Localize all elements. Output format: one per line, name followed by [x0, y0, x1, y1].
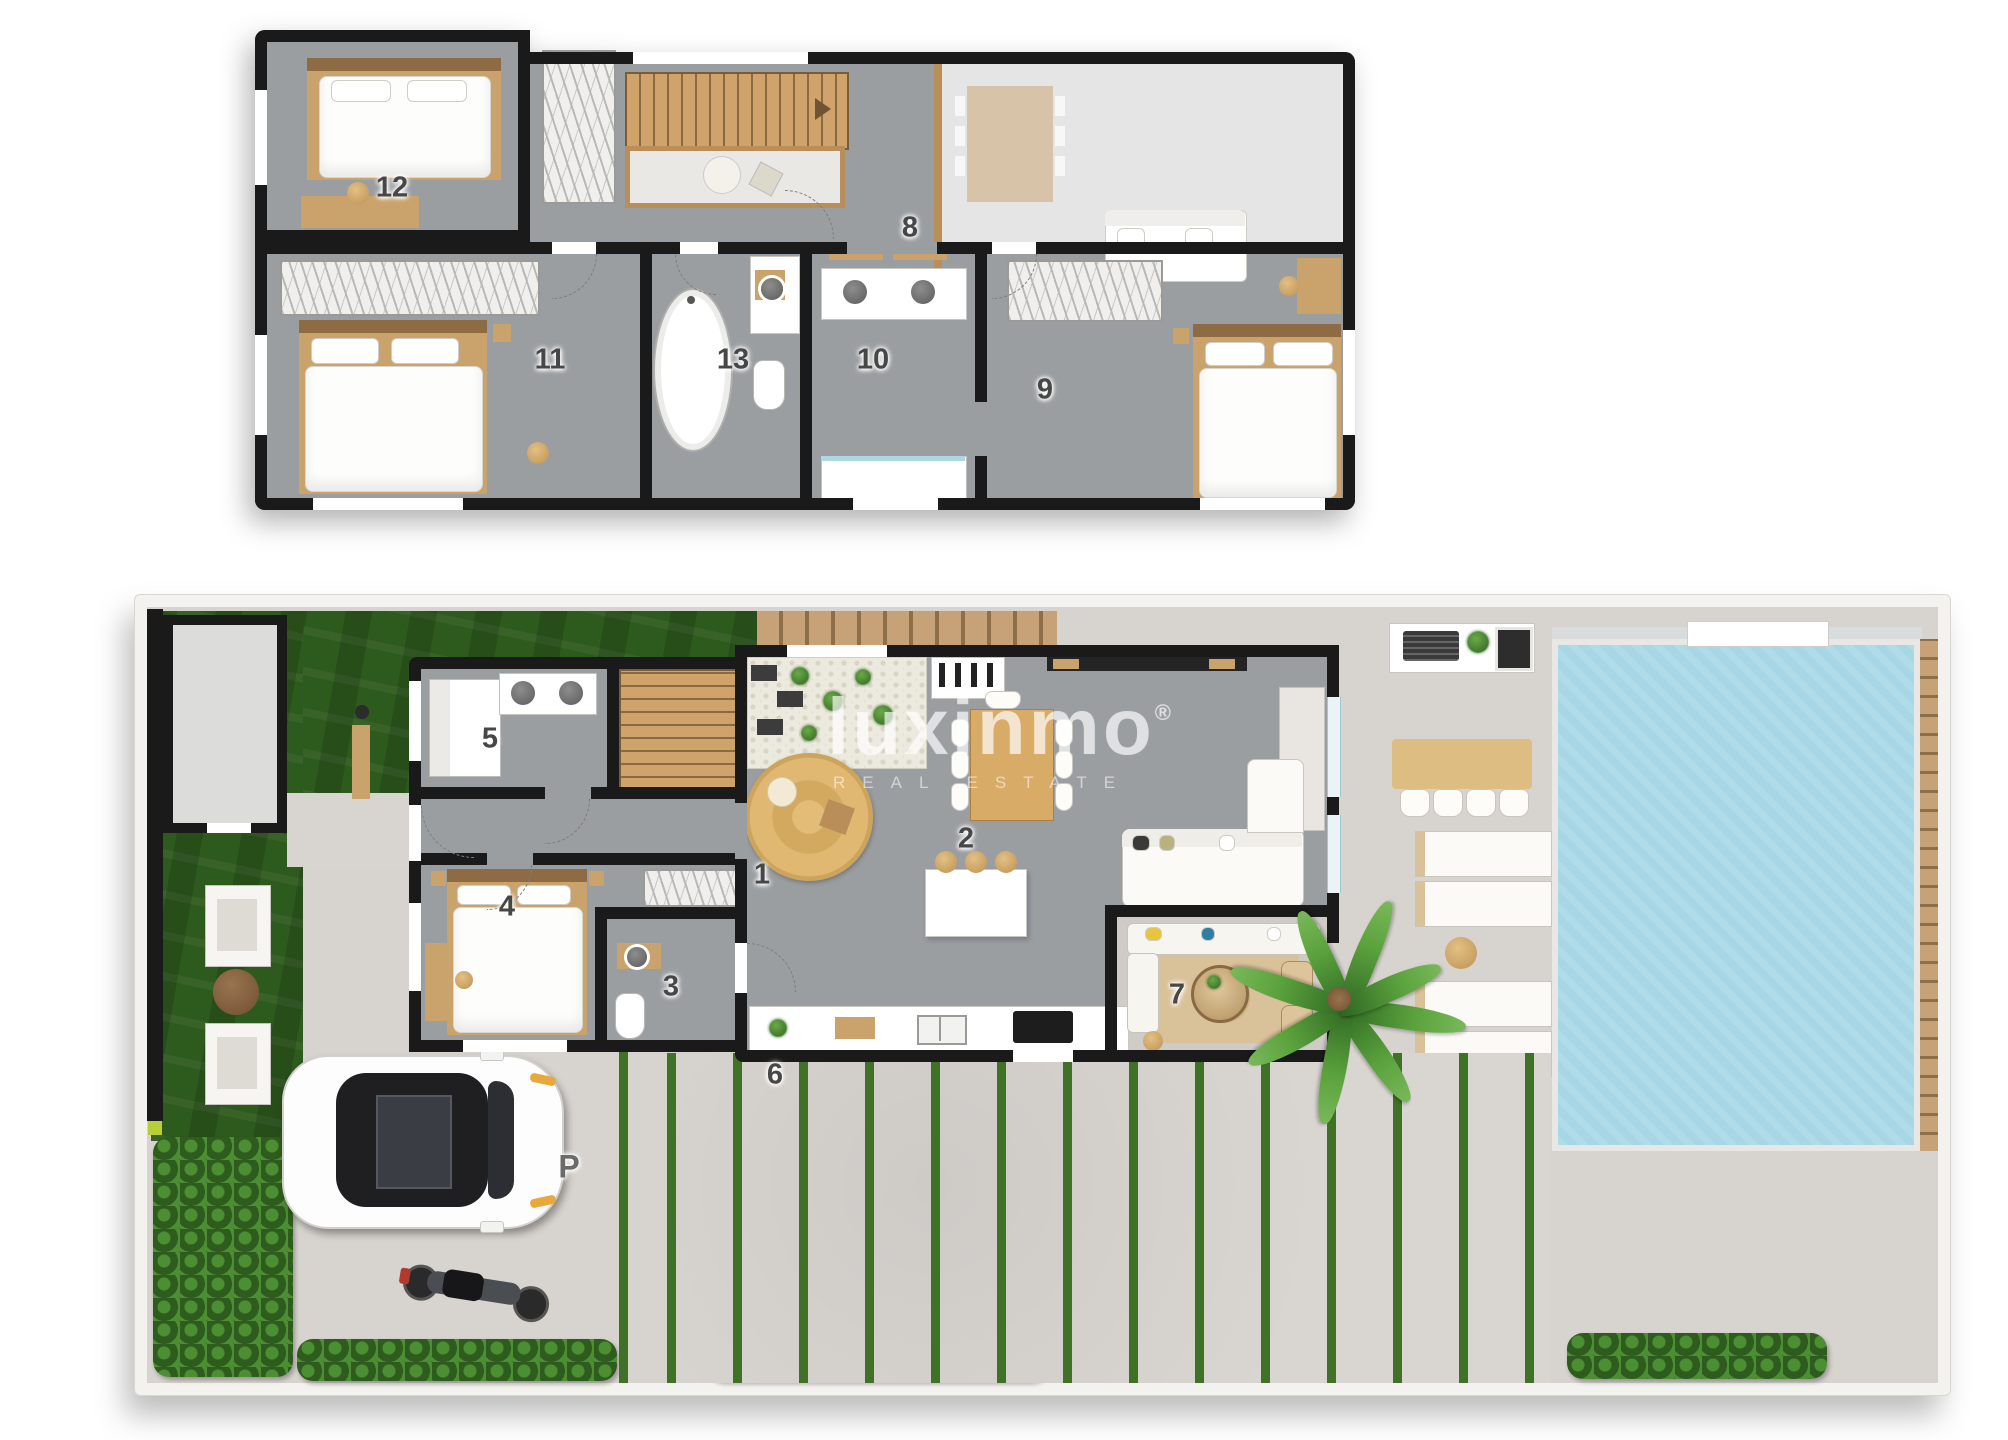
- door-gap-bedroom-11: [552, 242, 596, 254]
- partition-11-13: [640, 254, 652, 498]
- tub-faucet: [687, 296, 695, 304]
- outdoor-dining-table: [1392, 739, 1532, 789]
- toilet-3: [615, 993, 645, 1039]
- room4-door-gap: [487, 853, 533, 865]
- palm-trunk: [1327, 987, 1351, 1011]
- bed-11-pillow: [311, 338, 379, 364]
- terrace-pouf: [1143, 1031, 1163, 1051]
- bed-9-headboard: [1193, 324, 1341, 337]
- media-console: [1053, 659, 1079, 669]
- dining-chair: [985, 691, 1021, 709]
- stepping-slab: [777, 691, 803, 707]
- ghost-chair: [1055, 96, 1065, 116]
- ground-staircase: [619, 669, 739, 791]
- dining-chair: [1055, 751, 1073, 779]
- bed-9-pillow: [1205, 342, 1265, 366]
- window: [255, 90, 267, 185]
- ghost-sofa-back: [1105, 210, 1245, 226]
- outdoor-dining-chair: [1466, 789, 1496, 817]
- room-label-6: 6: [767, 1059, 783, 1092]
- hedge-bottom: [1567, 1333, 1827, 1379]
- window: [787, 645, 887, 657]
- motorcycle: [395, 1244, 553, 1331]
- partition-13-10: [800, 254, 812, 498]
- bedroom-11-wardrobe: [280, 260, 540, 316]
- window: [255, 335, 267, 435]
- wall-room3: [595, 907, 607, 1040]
- room-label-10: 10: [857, 344, 889, 377]
- pool-deck-wood: [1920, 639, 1938, 1151]
- car-mirror: [480, 1221, 504, 1233]
- dressing-desk-4: [425, 943, 449, 1021]
- car-sunroof: [376, 1095, 452, 1189]
- lounger-side-table: [1445, 937, 1477, 969]
- sofa-pillow-dark: [1132, 835, 1150, 851]
- window: [409, 903, 421, 991]
- outdoor-dining-chair: [1433, 789, 1463, 817]
- dining-chair: [1055, 783, 1073, 811]
- wall: [1105, 917, 1117, 1062]
- room-label-13: 13: [717, 344, 749, 377]
- garden-plant: [873, 705, 893, 725]
- kitchen-sink-divider: [939, 1015, 941, 1041]
- kitchen-plant: [769, 1019, 787, 1037]
- parking-label: P: [558, 1149, 579, 1186]
- bed-9-duvet: [1199, 368, 1337, 498]
- room3-door-gap: [735, 943, 747, 993]
- window: [409, 681, 421, 761]
- serving-tray: [1495, 627, 1533, 671]
- glass-door: [1327, 815, 1341, 893]
- outdoor-dining-chair: [1400, 789, 1430, 817]
- table-plant: [1207, 975, 1221, 989]
- washbasin-10: [911, 280, 935, 304]
- stepping-slab: [751, 665, 777, 681]
- shower-10: [821, 456, 967, 500]
- hall-wardrobe: [542, 50, 616, 204]
- car: [282, 1055, 564, 1229]
- garden-plant: [801, 725, 817, 741]
- bed-11-pillow: [391, 338, 459, 364]
- wall: [255, 230, 530, 242]
- window: [463, 1040, 567, 1052]
- washbasin-5: [559, 681, 583, 705]
- garden-side-table: [213, 969, 259, 1015]
- ghost-chair: [955, 126, 965, 146]
- gate-marker: [148, 1121, 162, 1135]
- washbasin-3: [627, 947, 647, 967]
- grass-joint-line: [619, 1037, 628, 1383]
- outdoor-sofa-return: [1127, 953, 1159, 1033]
- wall: [255, 242, 1355, 254]
- garden-armchair-cushion: [217, 1037, 257, 1089]
- car-windshield: [488, 1081, 514, 1199]
- storage-door-gap: [207, 823, 251, 833]
- media-console: [1209, 659, 1235, 669]
- motorcycle-seat: [441, 1268, 485, 1302]
- bed-12-headboard: [307, 58, 501, 71]
- bbq-grill: [1403, 631, 1459, 661]
- dressing-stool-4: [455, 971, 473, 989]
- car-headlight: [529, 1072, 556, 1086]
- kitchen-terrace-door: [1013, 1050, 1073, 1062]
- privacy-screen: [352, 725, 370, 799]
- garden-armchair-cushion: [217, 899, 257, 951]
- stair-direction-arrow: [815, 98, 831, 120]
- window: [1343, 330, 1355, 435]
- ghost-chair: [955, 156, 965, 176]
- bed-11-headboard: [299, 320, 487, 333]
- potted-plant: [1467, 631, 1489, 653]
- bed-11-duvet: [305, 366, 483, 492]
- ground-floor-plan: 1 2 3 4 5 6 7 P luxinmo® REAL ESTATE: [135, 595, 1950, 1395]
- bed-9-pillow: [1273, 342, 1333, 366]
- sun-lounger: [1415, 881, 1552, 927]
- toilet-13: [753, 360, 785, 410]
- pool-steps: [1687, 621, 1829, 647]
- desk-12-chair: [347, 182, 369, 204]
- room5-door-gap: [545, 787, 591, 799]
- room-label-5: 5: [482, 723, 498, 756]
- wall-stairs: [607, 669, 619, 787]
- room-label-2: 2: [958, 823, 974, 856]
- landing-opening: [847, 242, 937, 254]
- desk-9-chair: [1279, 276, 1299, 296]
- wine-bottles: [939, 663, 945, 687]
- hedge-bottom: [297, 1339, 617, 1381]
- window: [633, 52, 808, 64]
- dining-chair: [951, 783, 969, 811]
- shower-10-glass: [821, 456, 965, 461]
- room-label-9: 9: [1037, 374, 1053, 407]
- wall: [409, 657, 747, 669]
- bed-12-pillow: [407, 80, 467, 102]
- door-gap-bath-13: [680, 242, 718, 254]
- upper-floor-plan: 12 8 11 13 10 9: [255, 30, 1355, 510]
- room-label-3: 3: [663, 971, 679, 1004]
- stepping-slab: [757, 719, 783, 735]
- dining-chair: [951, 751, 969, 779]
- outdoor-pillow-blue: [1201, 927, 1215, 941]
- washbasin-13: [761, 278, 783, 300]
- nightstand-11: [493, 324, 511, 342]
- wall: [255, 30, 530, 42]
- window: [1200, 498, 1325, 510]
- washbasin-10: [843, 280, 867, 304]
- door-gap-bedroom-9: [992, 242, 1036, 254]
- washbasin-5: [511, 681, 535, 705]
- wall-room3-top: [607, 907, 735, 919]
- island-stool: [935, 851, 957, 873]
- nightstand-4: [431, 871, 446, 886]
- island-stool: [995, 851, 1017, 873]
- nightstand-9: [1173, 328, 1189, 344]
- floorplan-page: { "watermark": { "brand": "luxinmo", "re…: [0, 0, 2008, 1440]
- outdoor-shower: [355, 705, 369, 719]
- chair-11: [527, 442, 549, 464]
- wall: [1327, 917, 1339, 943]
- room-label-7: 7: [1169, 979, 1185, 1012]
- bed-12-pillow: [331, 80, 391, 102]
- hall-living-opening: [735, 803, 747, 859]
- hedge-left: [153, 1137, 293, 1377]
- glass-door: [1327, 697, 1341, 797]
- sofa-pillow: [1219, 835, 1235, 851]
- car-headlight: [529, 1194, 556, 1208]
- room-label-11: 11: [535, 344, 566, 377]
- nightstand-4: [589, 871, 604, 886]
- ghost-chair: [1055, 126, 1065, 146]
- room-label-8: 8: [902, 212, 918, 245]
- cooktop: [1013, 1011, 1073, 1043]
- ghost-chair: [1055, 156, 1065, 176]
- window: [853, 498, 938, 510]
- pouf: [767, 777, 797, 807]
- dining-chair: [1055, 719, 1073, 747]
- room-label-1: 1: [754, 859, 770, 892]
- storage-room: [163, 615, 287, 833]
- outdoor-dining-chair: [1499, 789, 1529, 817]
- sofa-chaise: [1247, 759, 1304, 833]
- outdoor-pillow: [1267, 927, 1281, 941]
- kitchen-sink: [917, 1015, 967, 1045]
- swimming-pool: [1552, 639, 1920, 1151]
- window: [313, 498, 463, 510]
- garden-plant: [791, 667, 809, 685]
- terrace-6-paving: [667, 1053, 1551, 1383]
- wall: [409, 1040, 747, 1052]
- front-door-gap: [409, 805, 421, 861]
- wardrobe-4: [643, 869, 737, 907]
- cutting-board: [835, 1017, 875, 1039]
- outdoor-pillow-yellow: [1145, 927, 1162, 941]
- entry-walkway: [287, 793, 411, 867]
- boundary-wall-left: [147, 609, 163, 1121]
- garden-plant: [855, 669, 871, 685]
- dining-chair: [951, 719, 969, 747]
- dining-table: [970, 709, 1054, 821]
- room-label-12: 12: [376, 172, 408, 205]
- void-armchair: [703, 156, 741, 194]
- ghost-chair: [955, 96, 965, 116]
- desk-9: [1297, 258, 1341, 314]
- bed-4-duvet: [453, 907, 583, 1033]
- kitchen-island: [925, 869, 1027, 937]
- garden-plant: [823, 691, 843, 711]
- ghost-dining-table: [967, 86, 1053, 202]
- sun-lounger: [1415, 831, 1552, 877]
- room-label-4: 4: [499, 891, 515, 924]
- door-gap-10-9: [975, 402, 987, 456]
- sofa-pillow-olive: [1159, 835, 1175, 851]
- partition-10-9: [975, 254, 987, 498]
